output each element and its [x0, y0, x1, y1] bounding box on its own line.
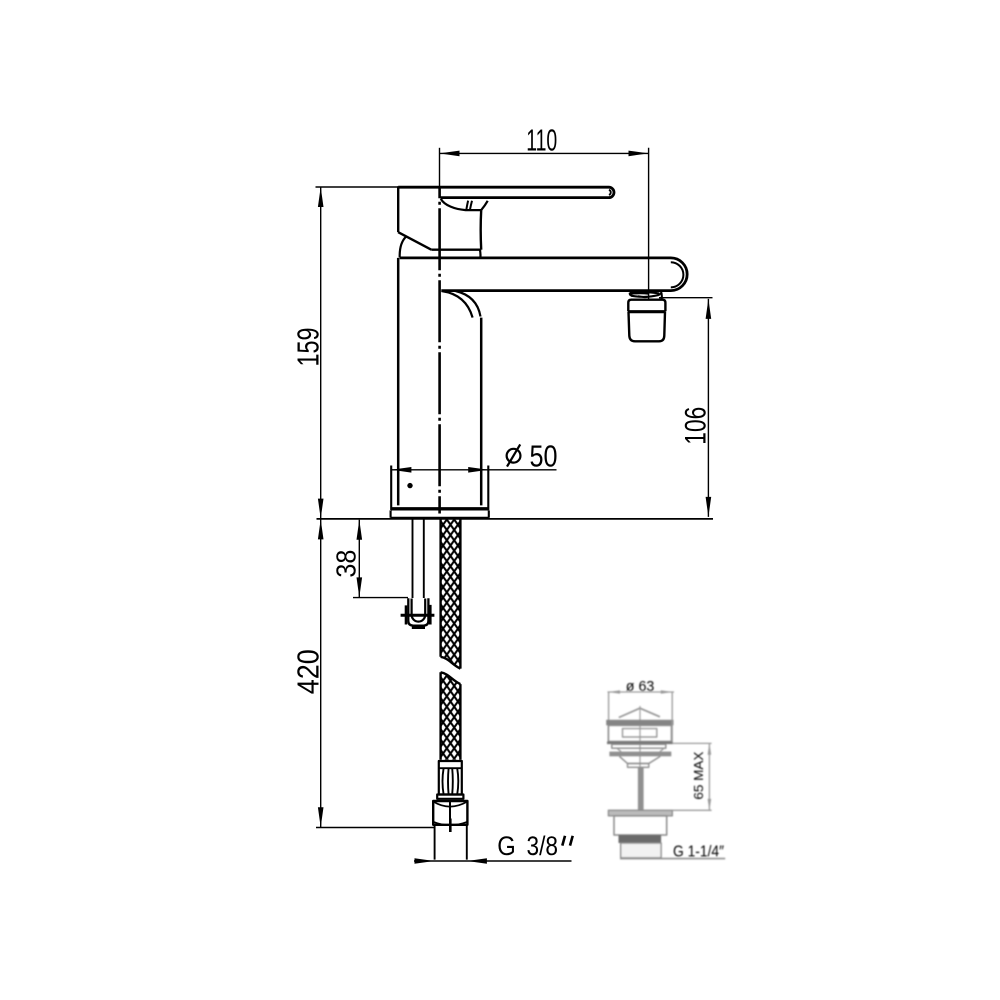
svg-text:G 1-1/4″: G 1-1/4″ — [673, 843, 724, 860]
svg-text:106: 106 — [680, 407, 713, 445]
svg-text:159: 159 — [290, 328, 325, 367]
svg-text:38: 38 — [331, 550, 362, 578]
svg-text:110: 110 — [526, 122, 557, 157]
svg-text:420: 420 — [291, 649, 326, 694]
svg-text:3/8: 3/8 — [527, 831, 559, 861]
svg-text:ø 63: ø 63 — [626, 679, 655, 695]
svg-text:65 MAX: 65 MAX — [692, 751, 706, 800]
svg-text:50: 50 — [530, 438, 558, 473]
svg-text:G: G — [497, 831, 516, 861]
